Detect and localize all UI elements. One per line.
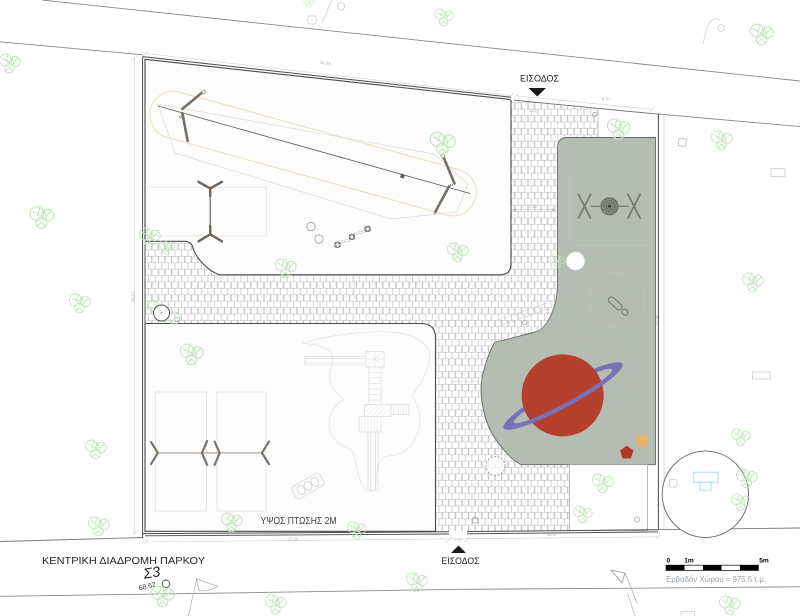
svg-text:1.95: 1.95 [454,538,461,542]
svg-text:ΕΙΣΟΔΟΣ: ΕΙΣΟΔΟΣ [520,74,559,85]
svg-text:3.18: 3.18 [529,204,538,209]
svg-text:Εμβαδόν Χώρου = 975.5 τ.μ.: Εμβαδόν Χώρου = 975.5 τ.μ. [666,575,766,584]
svg-text:ΥΨΟΣ ΠΤΩΣΗΣ 2Μ: ΥΨΟΣ ΠΤΩΣΗΣ 2Μ [261,516,337,527]
svg-text:5m: 5m [759,558,769,565]
svg-text:Σ3: Σ3 [141,564,161,583]
svg-text:0: 0 [667,558,671,565]
svg-text:34.01: 34.01 [131,291,136,303]
svg-text:15.98: 15.98 [288,537,299,542]
svg-text:6.57: 6.57 [602,96,612,102]
svg-text:1.51: 1.51 [529,108,538,114]
svg-text:ΚΕΝΤΡΙΚΗ ΔΙΑΔΡΟΜΗ ΠΑΡΚΟΥ: ΚΕΝΤΡΙΚΗ ΔΙΑΔΡΟΜΗ ΠΑΡΚΟΥ [42,556,205,567]
svg-text:ΕΙΣΟΔΟΣ: ΕΙΣΟΔΟΣ [442,556,480,567]
svg-text:1m: 1m [684,558,694,565]
